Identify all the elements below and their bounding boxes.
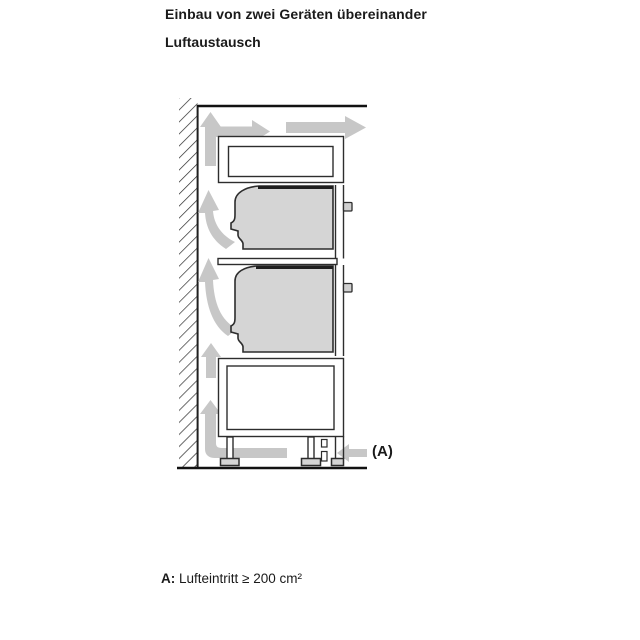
oven-knobs [344, 203, 353, 293]
lower-oven-knob-icon [344, 284, 353, 293]
legend-text: Lufteintritt ≥ 200 cm² [179, 571, 302, 586]
shelf-board [218, 259, 337, 265]
bottom-compartment [219, 359, 344, 437]
legend-caption: A: Lufteintritt ≥ 200 cm² [161, 571, 302, 586]
upper-oven-knob-icon [344, 203, 353, 212]
wall-hatching [179, 98, 198, 468]
air-inlet-label: (A) [372, 443, 393, 460]
top-compartment [219, 137, 344, 183]
legend-key: A: [161, 571, 175, 586]
arrow-right-long-icon [286, 116, 366, 139]
plinth-dashed-marker [322, 440, 328, 462]
left-foot [221, 459, 240, 466]
arrow-curved-upper-icon [198, 190, 235, 249]
manual-page: Einbau von zwei Geräten übereinander Luf… [0, 0, 640, 640]
column-foot [332, 459, 344, 466]
lower-oven [231, 266, 333, 352]
installation-diagram [0, 0, 640, 640]
upper-oven [231, 186, 333, 249]
arrow-curved-lower-icon [198, 258, 237, 336]
right-foot [302, 459, 321, 466]
